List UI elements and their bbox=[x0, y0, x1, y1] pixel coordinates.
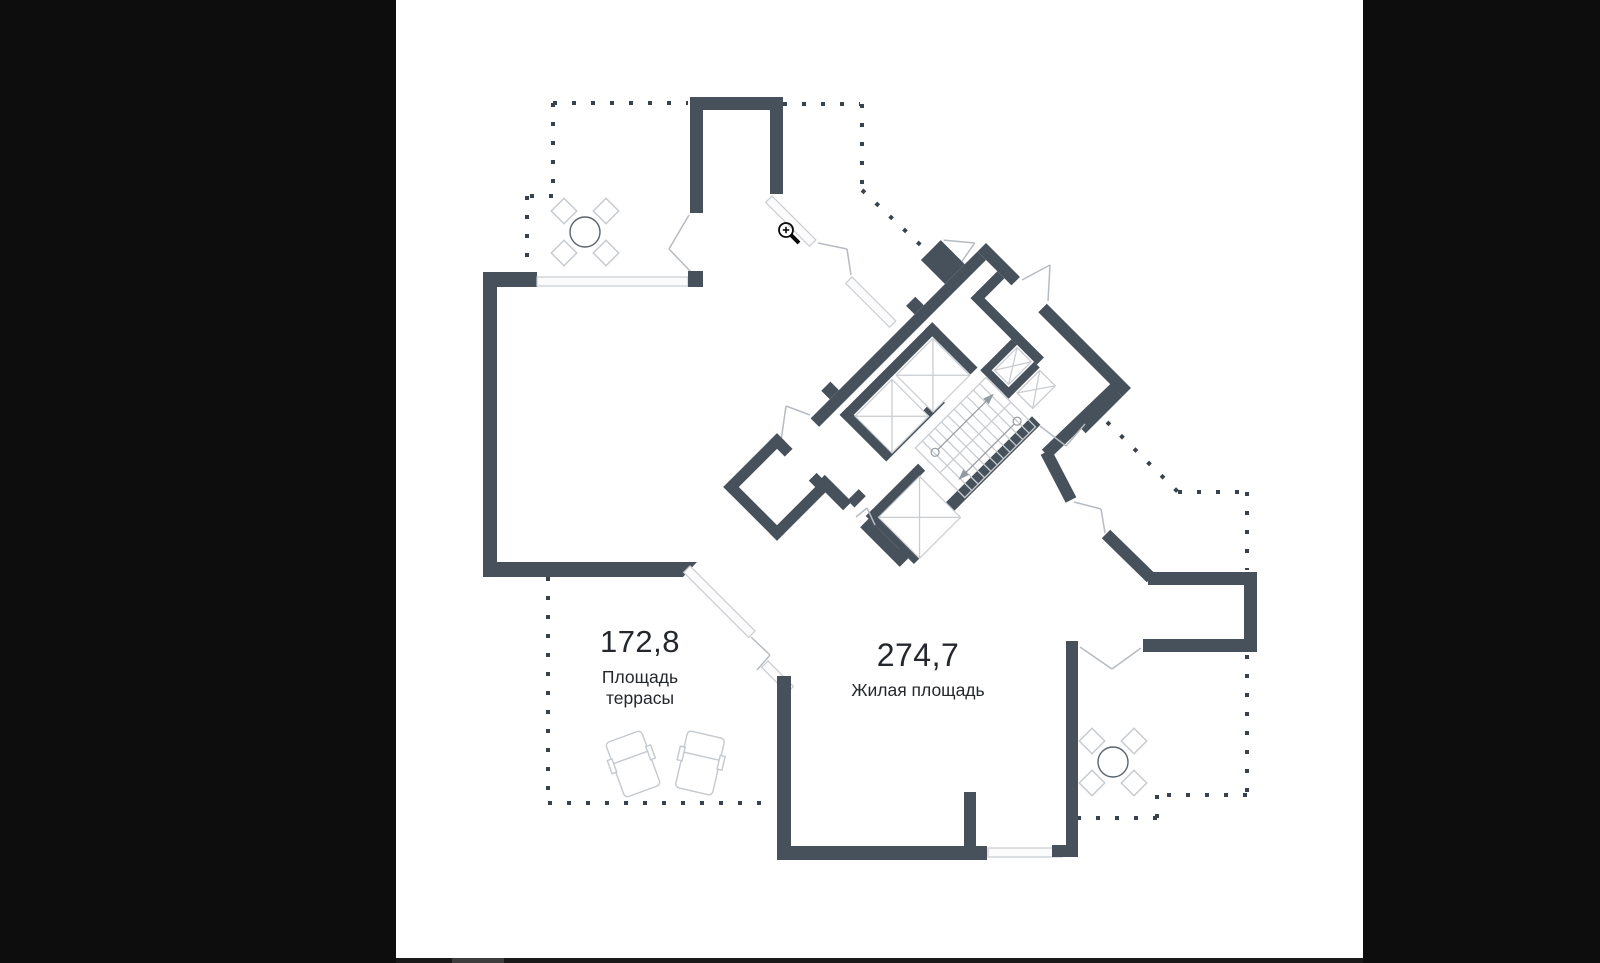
round-table bbox=[1098, 747, 1128, 777]
living-area-caption: Жилая площадь bbox=[851, 680, 984, 700]
wall-segment bbox=[777, 846, 987, 860]
left-letterbox bbox=[0, 0, 396, 963]
terrace-area-value: 172,8 bbox=[600, 624, 680, 659]
wall-segment bbox=[1143, 639, 1256, 652]
image-viewer: 172,8 Площадь террасы 274,7 Жилая площад… bbox=[0, 0, 1600, 963]
wall-segment bbox=[688, 271, 703, 287]
terrace-area-caption-2: террасы bbox=[606, 688, 674, 708]
wall-segment bbox=[1066, 641, 1078, 857]
wall-segment bbox=[1148, 572, 1254, 585]
wall-segment bbox=[690, 97, 703, 213]
round-table bbox=[570, 217, 600, 247]
wall-segment bbox=[770, 110, 783, 194]
plan-canvas[interactable] bbox=[396, 0, 1363, 963]
right-letterbox bbox=[1363, 0, 1600, 963]
bottom-bar-thumb[interactable] bbox=[452, 958, 504, 963]
wall-segment bbox=[483, 562, 683, 577]
wall-segment bbox=[777, 676, 791, 860]
wall-segment bbox=[483, 272, 497, 570]
living-area-value: 274,7 bbox=[877, 637, 960, 673]
terrace-area-caption-1: Площадь bbox=[602, 667, 678, 687]
bottom-bar bbox=[396, 958, 1363, 963]
window bbox=[988, 848, 1062, 857]
window bbox=[537, 277, 688, 286]
wall-segment bbox=[690, 97, 783, 110]
floor-plan-image[interactable]: 172,8 Площадь террасы 274,7 Жилая площад… bbox=[0, 0, 1600, 963]
wall-segment bbox=[964, 792, 976, 848]
wall-segment bbox=[1052, 845, 1066, 857]
